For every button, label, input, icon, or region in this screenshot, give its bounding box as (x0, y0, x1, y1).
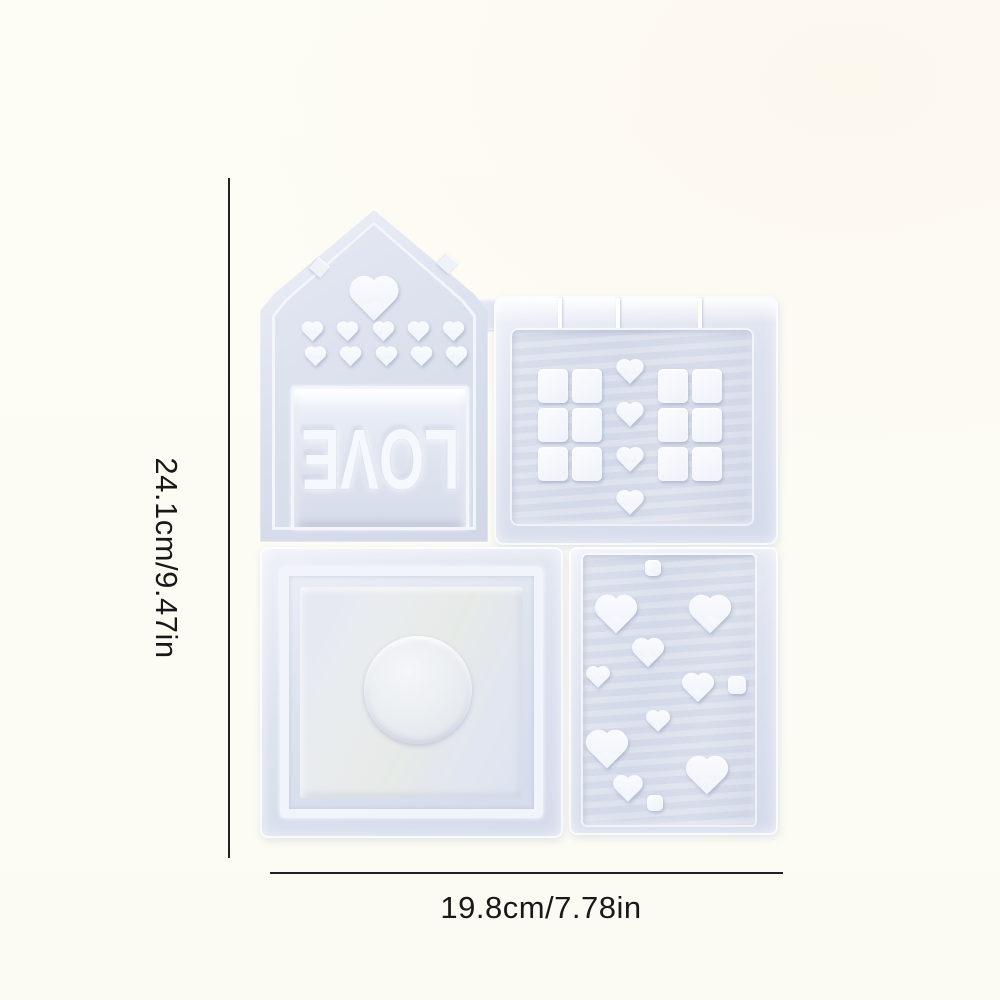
heart-cavity (617, 485, 643, 511)
square-cavity (645, 560, 661, 576)
square-cavity (538, 447, 568, 481)
heart-cavity (337, 317, 358, 338)
love-text: LOVE (301, 409, 460, 507)
heart-cavity (446, 342, 467, 363)
heart-cavity (617, 354, 643, 380)
square-cavity (728, 676, 746, 694)
circle-cavity-host (260, 547, 563, 838)
cubes-hearts-mold-section (494, 296, 778, 545)
square-cavity (572, 369, 602, 403)
square-cavity (572, 408, 602, 442)
hearts-scatter-mold-section (569, 547, 778, 835)
square-cavity (538, 408, 568, 442)
silicone-mold: LOVE (0, 0, 1000, 1000)
heart-cavity (617, 442, 643, 468)
circle-cavity (364, 636, 472, 744)
square-cavity (692, 447, 722, 481)
heart-cavity (376, 342, 397, 363)
square-cavity (658, 408, 688, 442)
cube-heart-cavities (494, 296, 778, 545)
square-cavity (692, 408, 722, 442)
square-cavity (658, 447, 688, 481)
square-cavity (658, 369, 688, 403)
heart-cavity (411, 342, 432, 363)
heart-cavity (305, 342, 326, 363)
heart-cavity (647, 706, 669, 728)
heart-cavity (617, 397, 643, 423)
heart-cavity (687, 748, 727, 788)
love-panel-cavity: LOVE (291, 386, 469, 530)
square-cavity (647, 795, 663, 811)
square-cavity (538, 369, 568, 403)
house-love-mold-section: LOVE (258, 210, 490, 545)
heart-cavity (587, 722, 627, 762)
heart-cavity (596, 587, 636, 627)
heart-cavity (443, 317, 464, 338)
heart-cavity (587, 662, 609, 684)
heart-cavity (340, 342, 361, 363)
square-cavity (692, 369, 722, 403)
heart-cavity (614, 770, 642, 798)
heart-cavity (690, 587, 730, 627)
product-photo: 24.1cm/9.47in 19.8cm/7.78in LOVE (0, 0, 1000, 1000)
heart-cavity (351, 267, 397, 313)
heart-cavity (408, 317, 429, 338)
scattered-heart-cavities (569, 547, 778, 835)
heart-cavity (683, 667, 713, 697)
coaster-circle-mold-section (260, 547, 563, 838)
heart-cavity (633, 632, 663, 662)
square-cavity (572, 447, 602, 481)
heart-cavity (373, 317, 394, 338)
heart-cavity (302, 317, 323, 338)
